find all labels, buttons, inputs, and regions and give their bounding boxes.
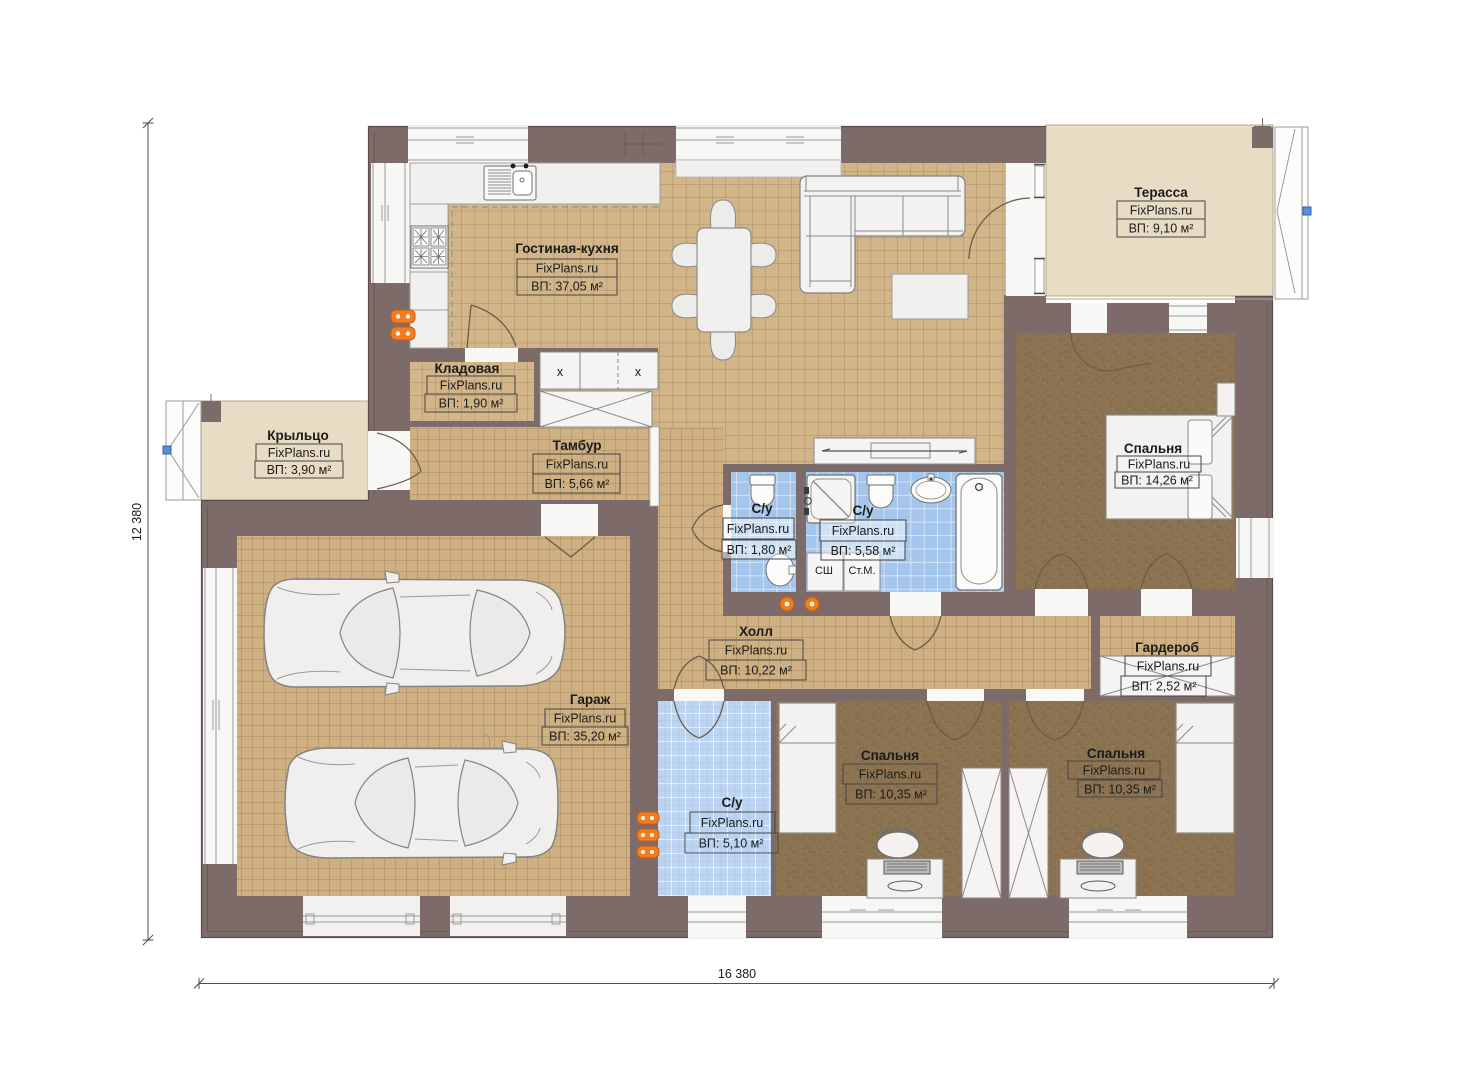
svg-text:Холл: Холл: [739, 624, 773, 639]
svg-text:Гараж: Гараж: [570, 692, 611, 707]
svg-text:FixPlans.ru: FixPlans.ru: [859, 768, 922, 782]
svg-text:Спальня: Спальня: [1124, 441, 1182, 456]
svg-text:FixPlans.ru: FixPlans.ru: [727, 522, 790, 536]
svg-text:Терасса: Терасса: [1134, 185, 1188, 200]
svg-text:ВП: 5,58 м²: ВП: 5,58 м²: [831, 544, 896, 558]
svg-text:С/у: С/у: [852, 503, 874, 518]
svg-text:ВП: 1,80 м²: ВП: 1,80 м²: [727, 543, 792, 557]
svg-text:ВП: 10,35 м²: ВП: 10,35 м²: [855, 788, 927, 802]
svg-text:FixPlans.ru: FixPlans.ru: [832, 524, 895, 538]
svg-text:x: x: [557, 365, 564, 379]
svg-text:Спальня: Спальня: [1087, 746, 1145, 761]
svg-text:Ст.М.: Ст.М.: [848, 565, 875, 577]
svg-text:ВП: 1,90 м²: ВП: 1,90 м²: [439, 397, 504, 411]
svg-text:Крыльцо: Крыльцо: [267, 428, 328, 443]
svg-text:С/у: С/у: [721, 795, 743, 810]
svg-text:16 380: 16 380: [718, 967, 756, 981]
svg-text:FixPlans.ru: FixPlans.ru: [701, 816, 764, 830]
svg-text:FixPlans.ru: FixPlans.ru: [554, 712, 617, 726]
svg-text:Кладовая: Кладовая: [435, 361, 500, 376]
svg-text:Тамбур: Тамбур: [553, 438, 602, 453]
svg-text:FixPlans.ru: FixPlans.ru: [536, 262, 599, 276]
svg-text:FixPlans.ru: FixPlans.ru: [1083, 764, 1146, 778]
svg-text:FixPlans.ru: FixPlans.ru: [1130, 204, 1193, 218]
svg-text:ВП: 14,26 м²: ВП: 14,26 м²: [1121, 474, 1193, 488]
svg-text:Гардероб: Гардероб: [1135, 640, 1199, 655]
svg-text:FixPlans.ru: FixPlans.ru: [268, 446, 331, 460]
svg-text:12 380: 12 380: [130, 503, 144, 541]
svg-text:ВП: 5,10 м²: ВП: 5,10 м²: [699, 837, 764, 851]
svg-text:СШ: СШ: [815, 565, 833, 577]
svg-text:Спальня: Спальня: [861, 748, 919, 763]
svg-text:Гостиная-кухня: Гостиная-кухня: [515, 241, 618, 256]
svg-text:FixPlans.ru: FixPlans.ru: [440, 379, 503, 393]
svg-text:FixPlans.ru: FixPlans.ru: [546, 458, 609, 472]
svg-text:ВП: 35,20 м²: ВП: 35,20 м²: [549, 730, 621, 744]
svg-text:ВП: 10,22 м²: ВП: 10,22 м²: [720, 664, 792, 678]
svg-text:ВП: 9,10 м²: ВП: 9,10 м²: [1129, 222, 1194, 236]
svg-text:x: x: [635, 365, 642, 379]
svg-text:ВП: 2,52 м²: ВП: 2,52 м²: [1132, 680, 1197, 694]
svg-text:FixPlans.ru: FixPlans.ru: [725, 644, 788, 658]
svg-text:С/у: С/у: [751, 501, 773, 516]
svg-text:ВП: 5,66 м²: ВП: 5,66 м²: [545, 477, 610, 491]
svg-text:FixPlans.ru: FixPlans.ru: [1137, 660, 1200, 674]
svg-text:ВП: 37,05 м²: ВП: 37,05 м²: [531, 280, 603, 294]
svg-text:ВП: 3,90 м²: ВП: 3,90 м²: [267, 463, 332, 477]
svg-text:FixPlans.ru: FixPlans.ru: [1128, 458, 1191, 472]
svg-text:ВП: 10,35 м²: ВП: 10,35 м²: [1084, 783, 1156, 797]
